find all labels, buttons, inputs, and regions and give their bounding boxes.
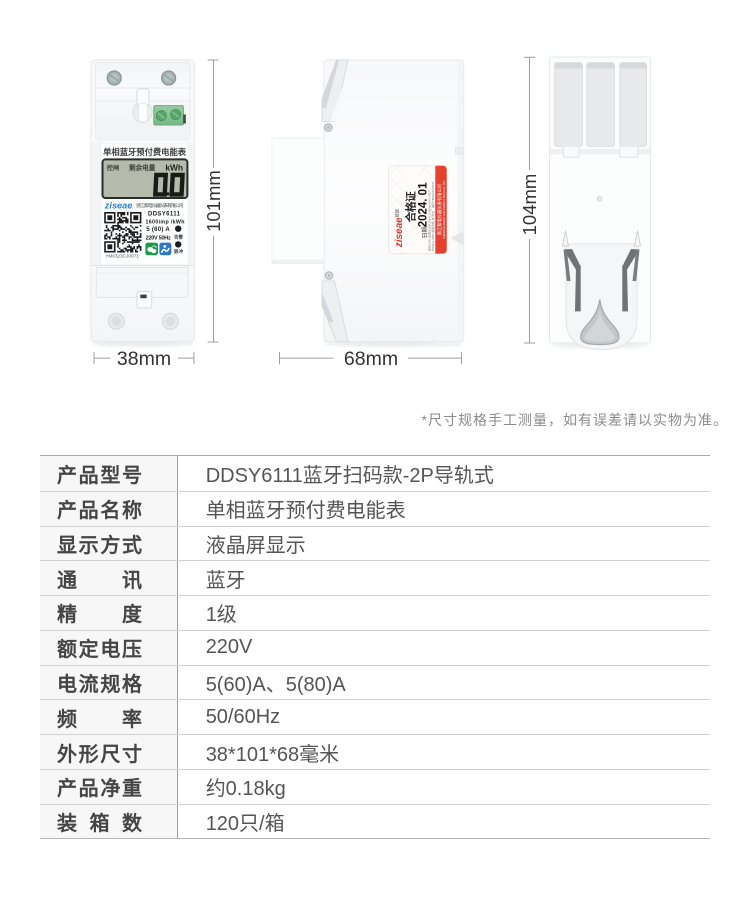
svg-text:ziseae: ziseae (394, 217, 405, 248)
svg-text:101mm: 101mm (203, 170, 224, 232)
svg-text:68mm: 68mm (344, 348, 398, 370)
svg-text:剩余电量: 剩余电量 (129, 163, 156, 172)
svg-text:ziseae: ziseae (104, 201, 133, 211)
svg-text:智能: 智能 (393, 208, 400, 217)
svg-text:告警: 告警 (174, 234, 183, 241)
svg-text:1600imp /kWh: 1600imp /kWh (146, 219, 185, 225)
svg-text:YM0323CJ0071: YM0323CJ0071 (105, 254, 139, 259)
svg-text:ZHEJIANG ZIDIAN INSTRUMENT TEC: ZHEJIANG ZIDIAN INSTRUMENT TECH CO.,LTD (442, 180, 446, 238)
svg-text:38mm: 38mm (117, 348, 171, 370)
svg-text:浙江紫电仪器仪表有限公司: 浙江紫电仪器仪表有限公司 (136, 202, 184, 209)
svg-text:220V 50Hz: 220V 50Hz (146, 235, 171, 241)
svg-text:104mm: 104mm (519, 174, 540, 236)
svg-text:脉冲: 脉冲 (173, 248, 183, 255)
svg-text:单相蓝牙预付费电能表: 单相蓝牙预付费电能表 (103, 147, 187, 157)
svg-text:浙江紫电仪器仪表有限公司: 浙江紫电仪器仪表有限公司 (436, 184, 443, 236)
svg-text:合格证: 合格证 (405, 191, 418, 223)
svg-text:18460.3-2007 检验合格 准予出厂 编号YM032: 18460.3-2007 检验合格 准予出厂 编号YM0323CJ0071 (430, 181, 435, 251)
svg-text:kWh: kWh (165, 163, 183, 173)
svg-text:DDSY6111: DDSY6111 (148, 212, 181, 218)
svg-text:控闸: 控闸 (107, 164, 119, 172)
svg-text:5 (60) A: 5 (60) A (146, 227, 170, 233)
